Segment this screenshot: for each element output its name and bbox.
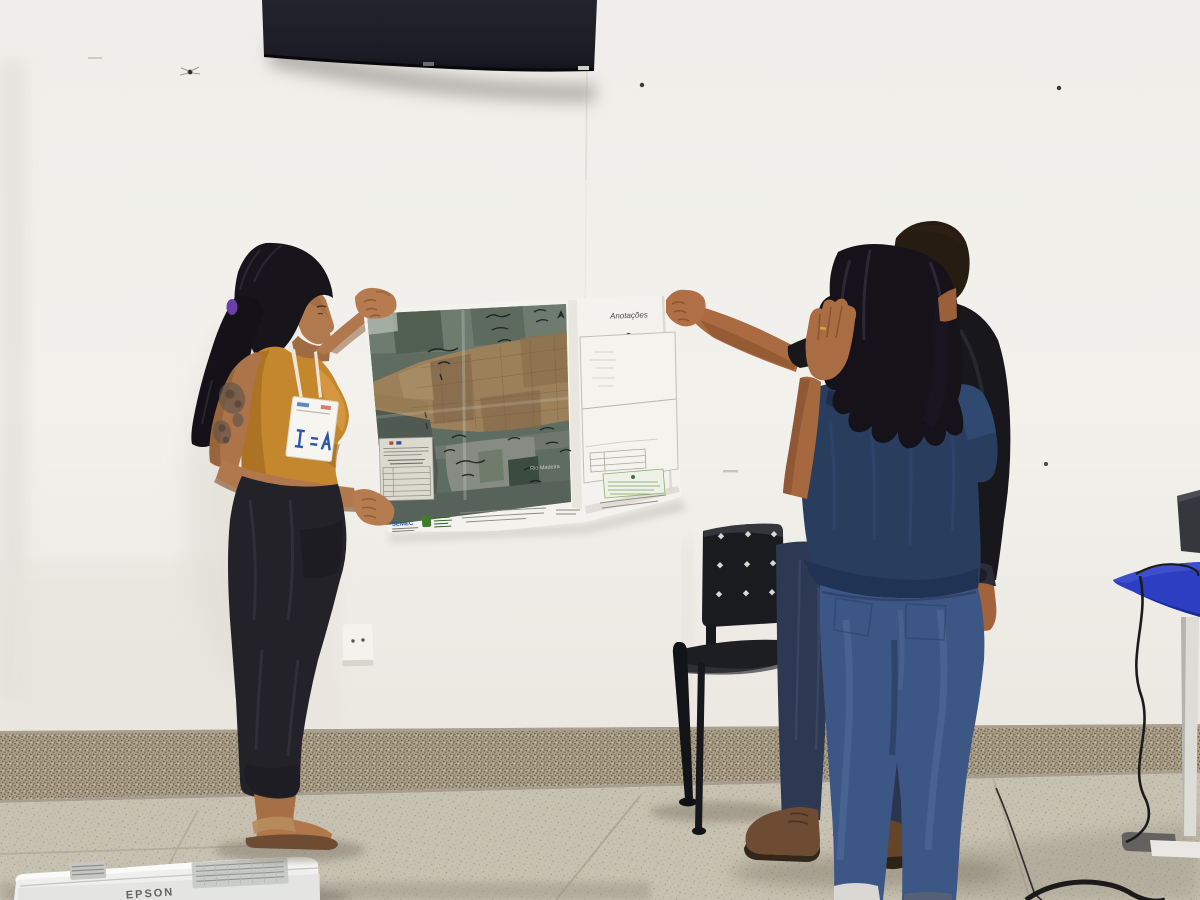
svg-text:EPSON: EPSON (125, 886, 174, 900)
svg-text:SEMEC: SEMEC (392, 521, 414, 528)
svg-text:Anotações: Anotações (609, 310, 648, 320)
